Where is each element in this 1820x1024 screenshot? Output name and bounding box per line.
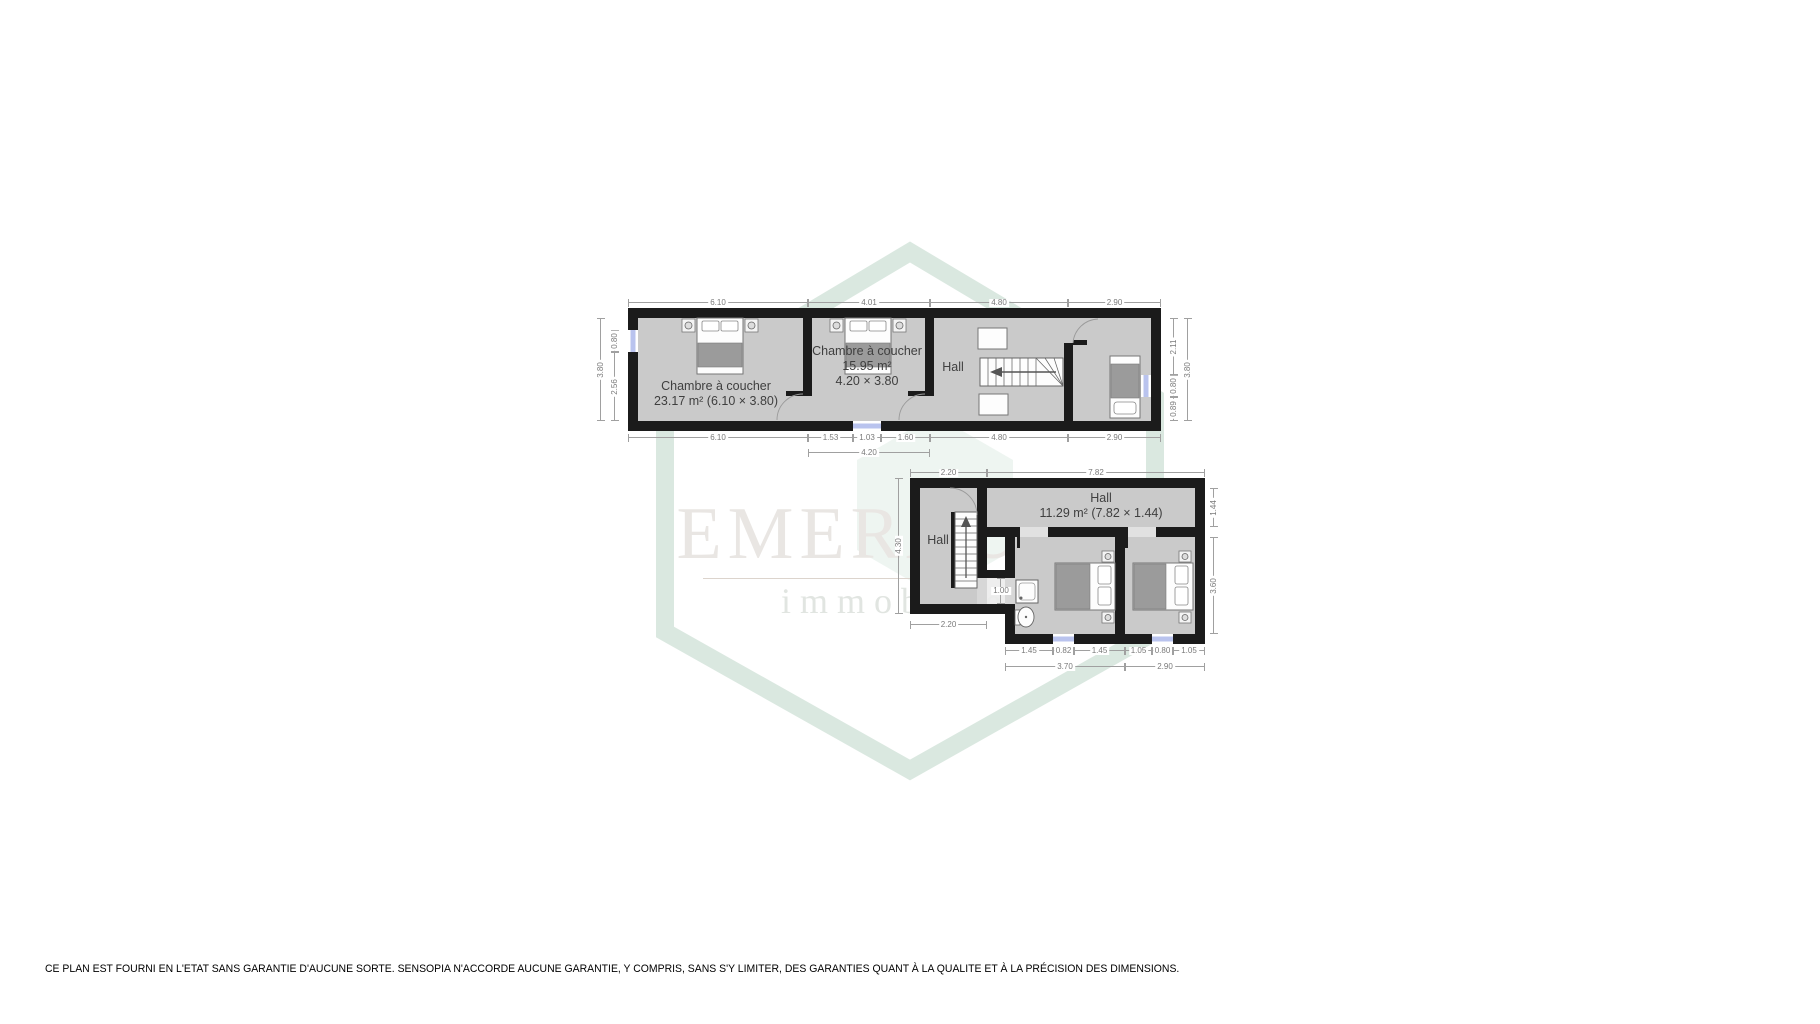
staircase-lower: [951, 512, 977, 588]
dim-left-window: 0.80: [614, 330, 615, 352]
wall-stub: [1073, 340, 1087, 345]
wall-stub: [977, 604, 1015, 614]
dim-left-total: 3.80: [600, 318, 601, 421]
floorplan-page: EMERAUDE immobilier: [0, 0, 1820, 1024]
door-jamb: [1017, 537, 1020, 548]
upper-hall-label: Hall: [942, 360, 964, 375]
window: [1152, 634, 1173, 644]
dim-top-3: 4.80: [930, 302, 1068, 303]
partition-wall: [1115, 527, 1125, 634]
dim-bottom-2a: 1.53: [808, 437, 853, 438]
dim-low-top-1: 2.20: [910, 472, 987, 473]
lower-hall-left-label: Hall: [927, 533, 949, 548]
window: [1053, 634, 1074, 644]
hall-cabinet: [978, 328, 1007, 349]
wall-stub: [908, 391, 934, 396]
shower: [1016, 580, 1038, 603]
lower-hall-label: Hall 11.29 m² (7.82 × 1.44): [1039, 491, 1162, 521]
dim-top-2: 4.01: [808, 302, 930, 303]
dim-right-2: 0.80: [1173, 375, 1174, 397]
wall-stub: [786, 391, 812, 396]
window: [853, 421, 881, 431]
bedroom1-label: Chambre à coucher 23.17 m² (6.10 × 3.80): [654, 379, 778, 409]
partition-wall: [925, 318, 934, 394]
partition-wall: [1064, 343, 1073, 421]
dim-bottom-2-total: 4.20: [808, 452, 930, 453]
dim-low-right-1: 1.44: [1213, 488, 1214, 527]
window: [1141, 375, 1151, 397]
dim-bottom-1: 6.10: [628, 437, 808, 438]
toilet: [1015, 607, 1034, 627]
dim-low-bottom-2c: 1.05: [1173, 650, 1205, 651]
door-opening: [1020, 527, 1048, 537]
disclaimer-text: CE PLAN EST FOURNI EN L'ETAT SANS GARANT…: [45, 963, 1179, 975]
door-opening: [1128, 527, 1156, 537]
single-bed: [1110, 356, 1140, 418]
dim-low-right-2: 3.60: [1213, 537, 1214, 634]
dim-top-4: 2.90: [1068, 302, 1161, 303]
dim-left-2: 2.56: [614, 352, 615, 421]
hall-cabinet: [979, 394, 1008, 415]
dim-low-bottom-1-total: 3.70: [1005, 666, 1125, 667]
dim-low-passage: 1.00: [1000, 578, 1001, 604]
dim-low-bottom-1c: 1.45: [1074, 650, 1125, 651]
dim-right-total: 3.80: [1187, 318, 1188, 421]
dim-low-left: 4.30: [898, 478, 899, 614]
dim-low-bottom-1a: 1.45: [1005, 650, 1053, 651]
dim-right-1: 2.11: [1173, 318, 1174, 375]
dim-right-3: 0.89: [1173, 397, 1174, 421]
door-jamb: [1125, 537, 1128, 548]
dim-bottom-2b: 1.03: [853, 437, 881, 438]
dim-low-bottom-2a: 1.05: [1125, 650, 1152, 651]
dim-bottom-4: 2.90: [1068, 437, 1161, 438]
dim-low-bottom-2-total: 2.90: [1125, 666, 1205, 667]
dim-bottom-3: 4.80: [930, 437, 1068, 438]
wall-stub: [977, 570, 1015, 578]
bedroom2-label: Chambre à coucher 15.95 m² 4.20 × 3.80: [812, 344, 922, 389]
dim-low-bottom-1b: 0.82: [1053, 650, 1074, 651]
dim-top-1: 6.10: [628, 302, 808, 303]
dim-bottom-2c: 1.60: [881, 437, 930, 438]
partition-wall: [803, 318, 812, 394]
dim-low-bottom-2b: 0.80: [1152, 650, 1173, 651]
dim-low-hall-bottom: 2.20: [910, 624, 987, 625]
dim-low-top-2: 7.82: [987, 472, 1205, 473]
staircase-upper: [980, 358, 1063, 386]
window: [628, 330, 638, 352]
